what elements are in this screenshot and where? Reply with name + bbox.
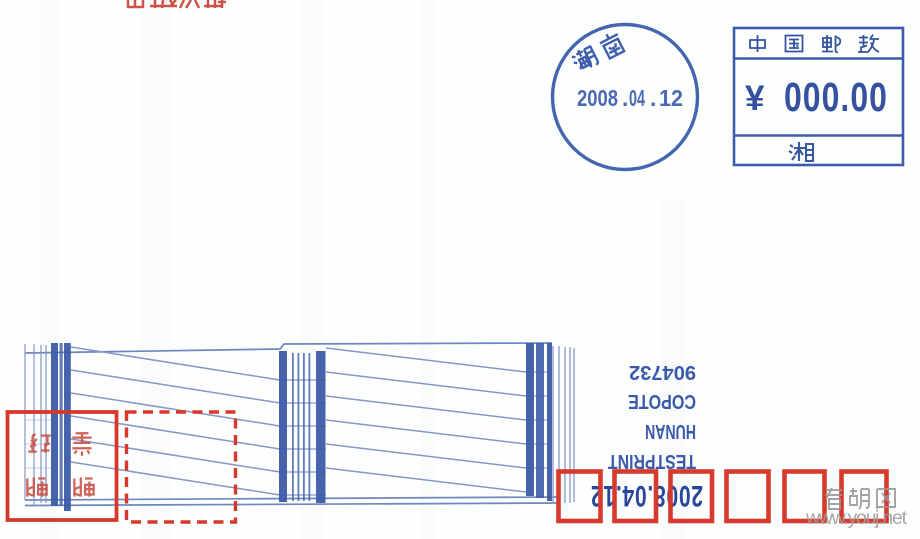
svg-text:TESTPRINT: TESTPRINT [608, 450, 696, 472]
svg-text:.: . [622, 85, 628, 111]
svg-text:.: . [650, 85, 656, 111]
svg-text:04: 04 [629, 85, 645, 111]
svg-text:12: 12 [659, 85, 683, 111]
svg-text:www.youj.net: www.youj.net [805, 507, 908, 529]
svg-text:¥: ¥ [745, 79, 765, 118]
svg-text:2008: 2008 [577, 85, 618, 111]
svg-text:904732: 904732 [629, 361, 696, 383]
svg-text:COPOTE: COPOTE [628, 390, 696, 412]
svg-text:2008.04.12: 2008.04.12 [591, 479, 703, 511]
svg-text:HUNAN: HUNAN [645, 420, 696, 442]
svg-text:000.00: 000.00 [784, 74, 887, 120]
